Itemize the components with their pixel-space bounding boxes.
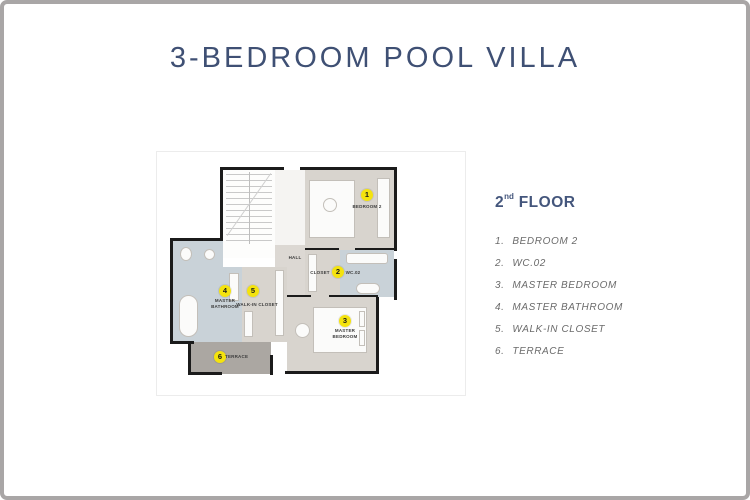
legend-item-label: WALK-IN CLOSET bbox=[512, 324, 605, 335]
wall bbox=[394, 259, 397, 300]
legend-item-number: 4. bbox=[495, 302, 509, 313]
pillow1-icon bbox=[359, 311, 365, 327]
wall bbox=[329, 295, 378, 297]
legend-item-label: MASTER BATHROOM bbox=[512, 302, 622, 313]
wc-sink-icon bbox=[356, 283, 380, 294]
page-title: 3-BEDROOM POOL VILLA bbox=[4, 42, 746, 75]
wall bbox=[285, 371, 379, 374]
floor-plan: 1 2 3 4 5 6 BEDROOM 2 HALL CLOSET WC.02 … bbox=[156, 151, 466, 396]
walkin-shelf2-icon bbox=[244, 311, 253, 337]
legend-item-number: 3. bbox=[495, 280, 509, 291]
legend-item-number: 6. bbox=[495, 346, 509, 357]
sink-icon bbox=[204, 249, 215, 260]
floor-heading: 2nd FLOOR bbox=[495, 192, 705, 212]
label-terrace: TERRACE bbox=[225, 354, 265, 360]
label-walk-in-closet: WALK-IN CLOSET bbox=[235, 302, 279, 308]
legend-item-master-bedroom: 3. MASTER BEDROOM bbox=[495, 280, 705, 291]
wall bbox=[305, 248, 339, 250]
stair-divider bbox=[249, 172, 250, 244]
legend-item-master-bathroom: 4. MASTER BATHROOM bbox=[495, 302, 705, 313]
legend-item-walk-in-closet: 5. WALK-IN CLOSET bbox=[495, 324, 705, 335]
legend-item-terrace: 6. TERRACE bbox=[495, 346, 705, 357]
label-master-bedroom: MASTER BEDROOM bbox=[323, 328, 367, 340]
room-stairwell bbox=[223, 170, 275, 258]
label-bedroom2: BEDROOM 2 bbox=[337, 204, 397, 210]
wall bbox=[170, 341, 194, 344]
marker-5: 5 bbox=[247, 285, 259, 297]
wall bbox=[170, 238, 223, 241]
legend-item-number: 5. bbox=[495, 324, 509, 335]
page-frame: 3-BEDROOM POOL VILLA bbox=[0, 0, 750, 500]
floor-suffix: nd bbox=[504, 192, 514, 201]
label-closet: CLOSET bbox=[300, 270, 340, 276]
wall bbox=[376, 297, 379, 373]
wall bbox=[270, 355, 273, 375]
legend-item-label: TERRACE bbox=[512, 346, 564, 357]
legend-item-bedroom2: 1. BEDROOM 2 bbox=[495, 236, 705, 247]
master-bathtub-icon bbox=[179, 295, 198, 337]
floor-word: FLOOR bbox=[514, 194, 576, 211]
label-wc02: WC.02 bbox=[338, 270, 368, 276]
marker-3: 3 bbox=[339, 315, 351, 327]
legend-item-label: WC.02 bbox=[512, 258, 546, 269]
chair-icon bbox=[295, 323, 310, 338]
legend-list: 1. BEDROOM 2 2. WC.02 3. MASTER BEDROOM … bbox=[495, 236, 705, 357]
wall bbox=[220, 167, 284, 170]
vanity-icon bbox=[229, 273, 239, 301]
wall bbox=[287, 295, 311, 297]
toilet-icon bbox=[180, 247, 192, 261]
floor-number: 2 bbox=[495, 194, 504, 211]
legend-panel: 2nd FLOOR 1. BEDROOM 2 2. WC.02 3. MASTE… bbox=[495, 192, 705, 368]
bed-pillow-icon bbox=[323, 198, 337, 212]
wall bbox=[188, 341, 191, 375]
legend-item-label: MASTER BEDROOM bbox=[512, 280, 617, 291]
marker-1: 1 bbox=[361, 189, 373, 201]
room-bath-strip bbox=[173, 241, 223, 267]
legend-item-wc02: 2. WC.02 bbox=[495, 258, 705, 269]
wall bbox=[170, 238, 173, 344]
legend-item-label: BEDROOM 2 bbox=[512, 236, 577, 247]
label-hall: HALL bbox=[280, 255, 310, 261]
wall bbox=[355, 248, 397, 250]
wall bbox=[220, 167, 223, 240]
legend-item-number: 2. bbox=[495, 258, 509, 269]
wall bbox=[188, 372, 222, 375]
bathtub-icon bbox=[346, 253, 388, 264]
marker-4: 4 bbox=[219, 285, 231, 297]
wall bbox=[300, 167, 397, 170]
legend-item-number: 1. bbox=[495, 236, 509, 247]
